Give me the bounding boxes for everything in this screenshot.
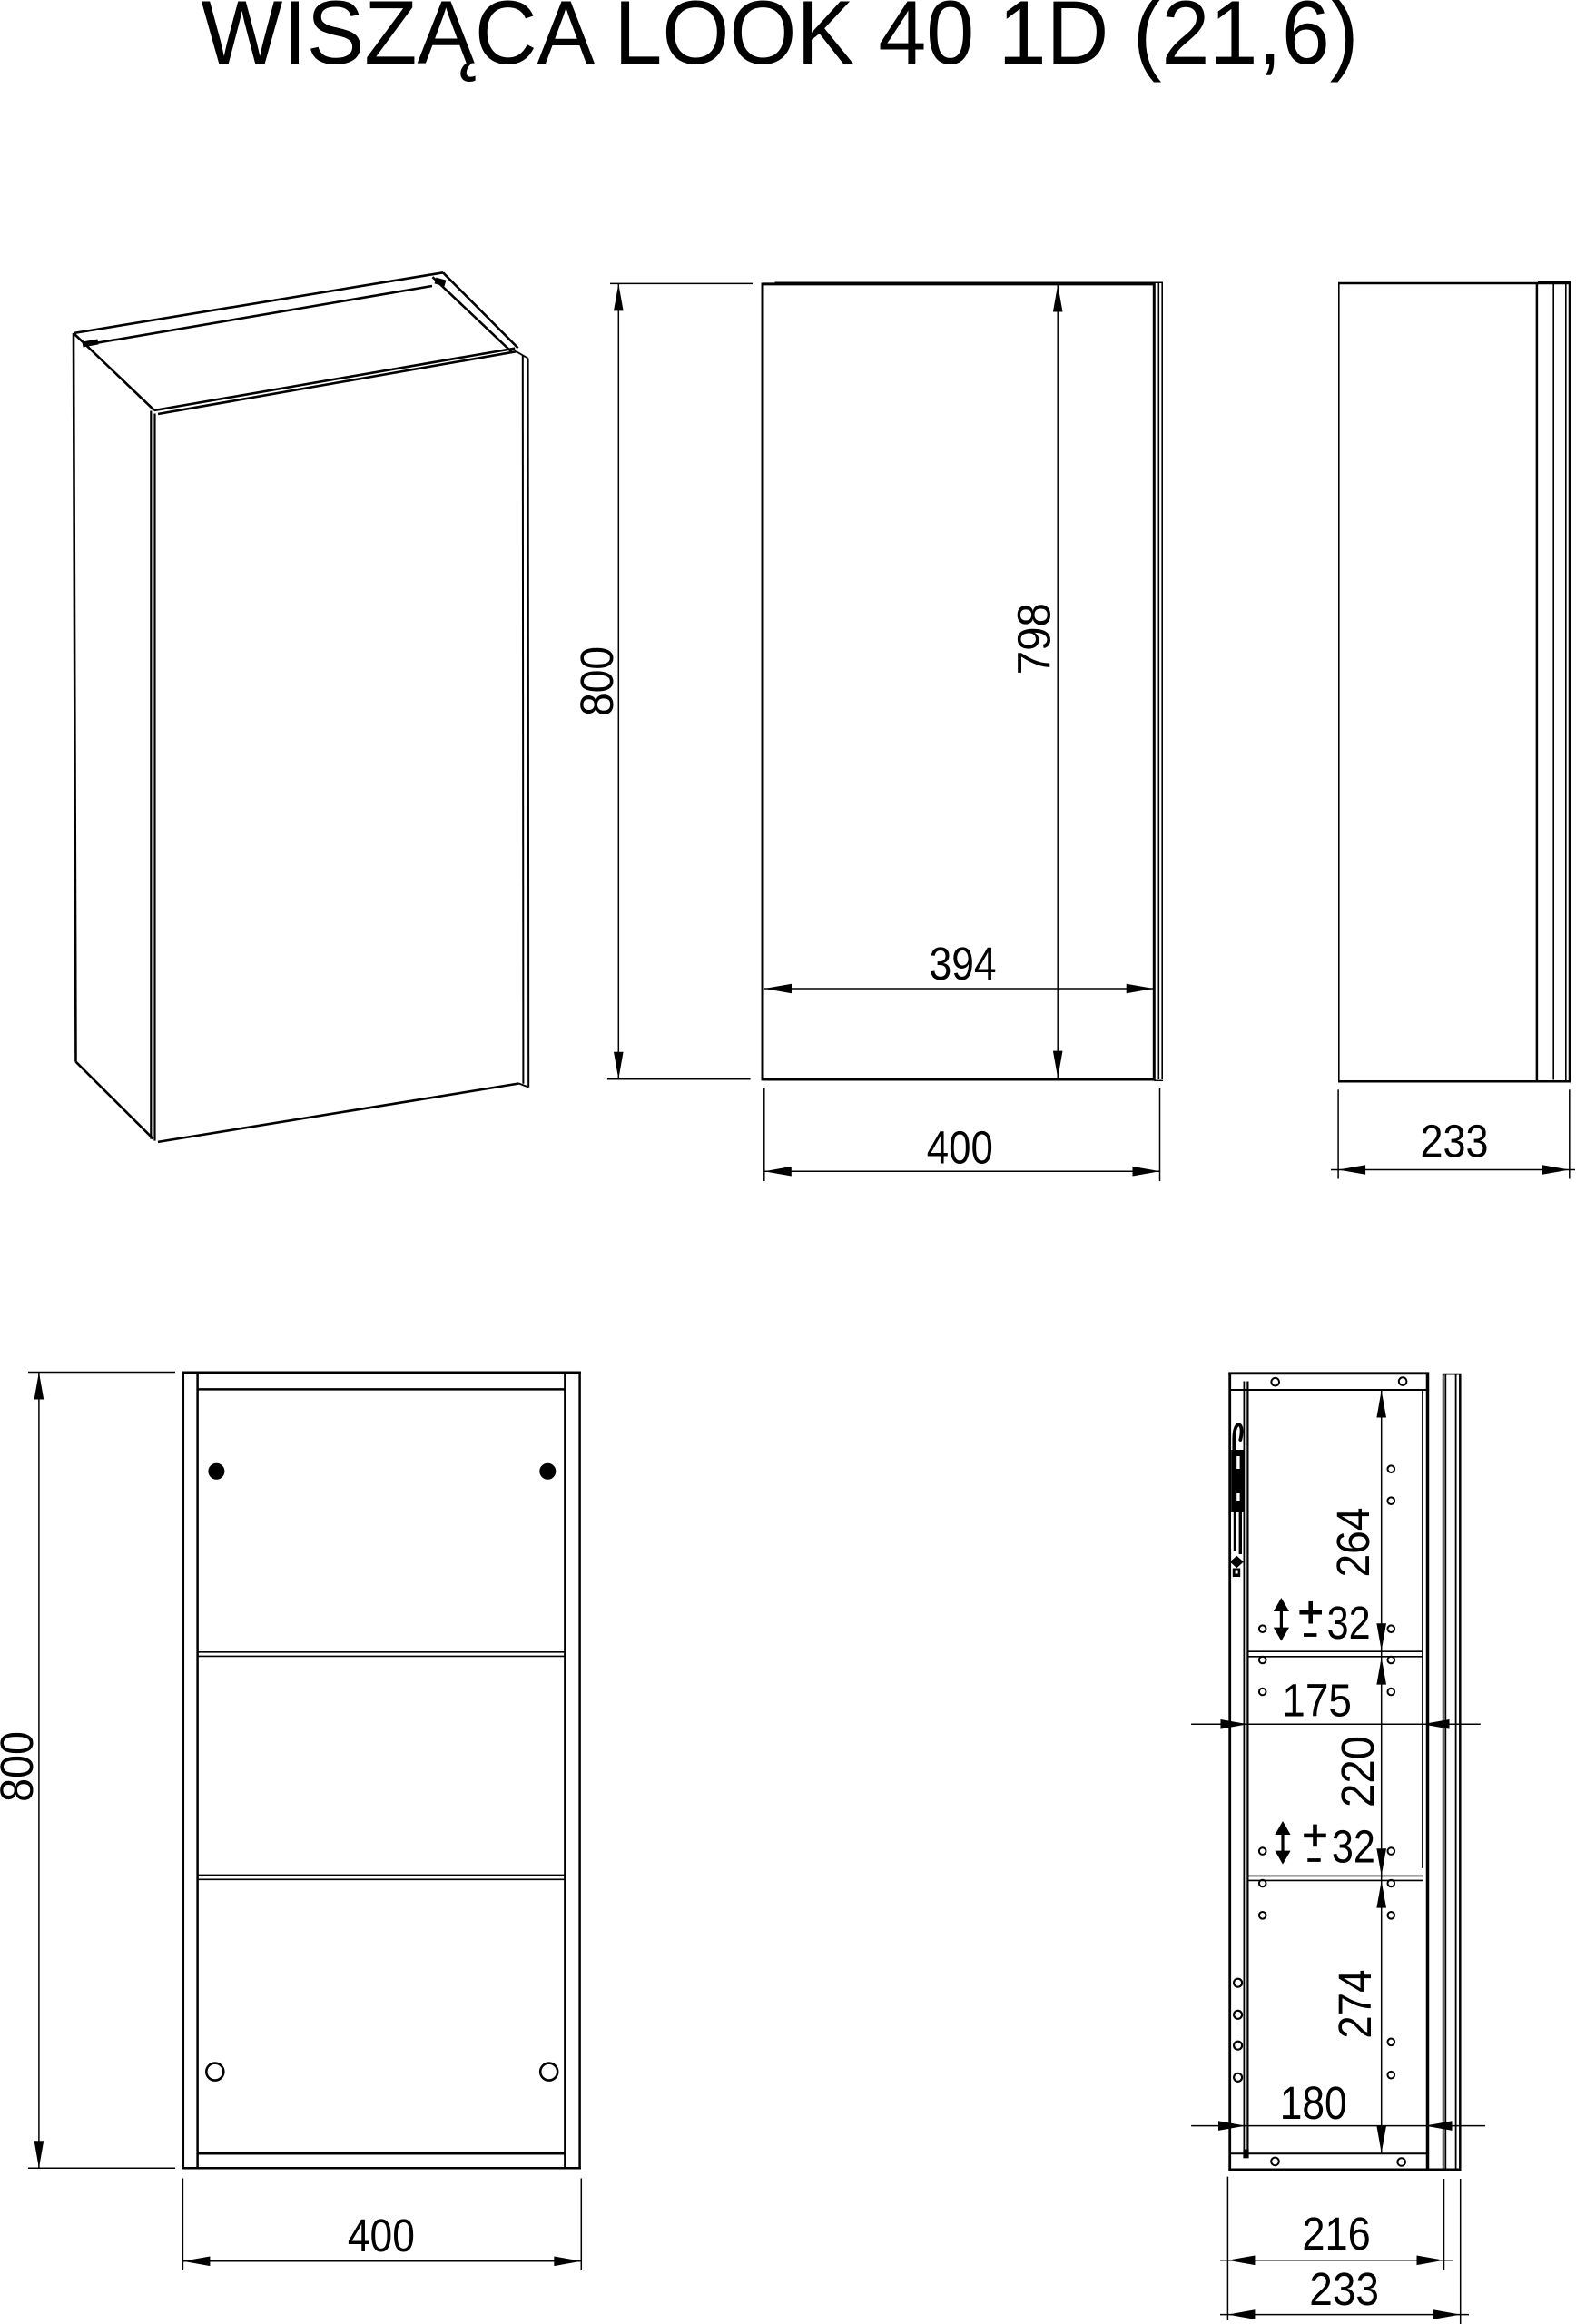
svg-text:400: 400 [927, 1122, 993, 1174]
svg-text:264: 264 [1327, 1508, 1379, 1578]
svg-text:800: 800 [571, 646, 623, 716]
svg-text:32: 32 [1327, 1597, 1371, 1649]
svg-text:800: 800 [0, 1731, 43, 1802]
svg-text:394: 394 [930, 938, 997, 990]
svg-text:32: 32 [1332, 1821, 1375, 1873]
svg-text:274: 274 [1329, 1970, 1381, 2039]
svg-text:233: 233 [1309, 2263, 1379, 2315]
svg-text:175: 175 [1282, 1675, 1352, 1727]
svg-text:798: 798 [1009, 603, 1060, 675]
svg-text:400: 400 [348, 2210, 415, 2261]
svg-text:220: 220 [1332, 1736, 1384, 1807]
svg-text:233: 233 [1421, 1116, 1489, 1167]
svg-text:180: 180 [1280, 2077, 1347, 2129]
svg-text:216: 216 [1302, 2208, 1370, 2260]
svg-text:WISZĄCA LOOK 40 1D (21,6): WISZĄCA LOOK 40 1D (21,6) [202, 0, 1359, 83]
